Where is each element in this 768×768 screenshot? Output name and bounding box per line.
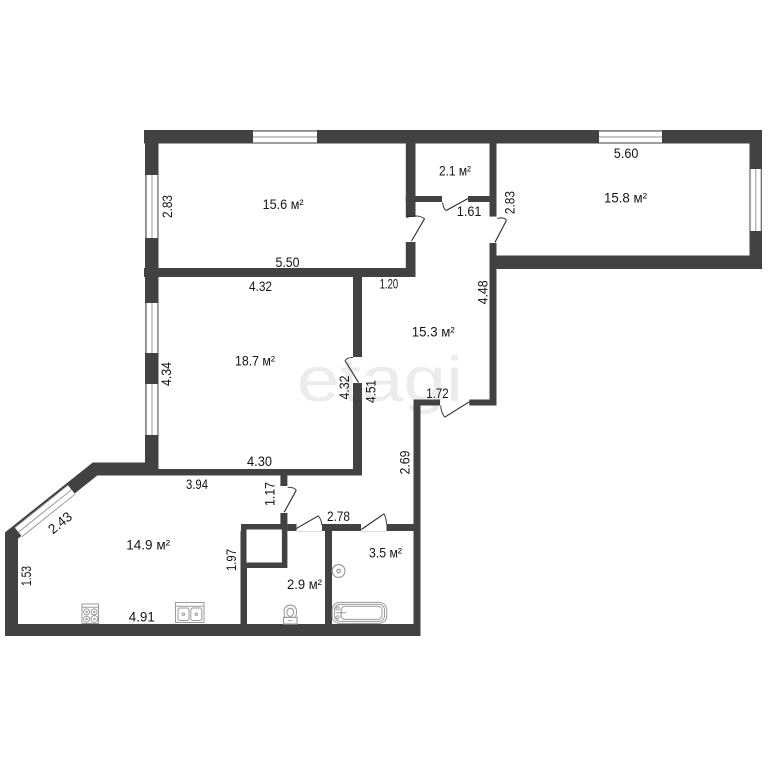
svg-text:3.5 м²: 3.5 м² [369,545,402,561]
svg-text:4.51: 4.51 [364,380,379,403]
svg-text:1.17: 1.17 [262,482,277,506]
svg-text:5.50: 5.50 [276,255,300,270]
svg-text:2.9 м²: 2.9 м² [287,576,322,592]
svg-text:18.7 м²: 18.7 м² [235,352,275,368]
svg-text:4.30: 4.30 [247,454,272,469]
svg-text:4.48: 4.48 [475,280,490,304]
svg-text:2.78: 2.78 [327,509,350,524]
svg-text:1.97: 1.97 [224,549,239,571]
svg-text:1.72: 1.72 [426,386,449,401]
svg-text:14.9 м²: 14.9 м² [126,537,170,553]
svg-text:15.3 м²: 15.3 м² [412,323,455,339]
svg-text:2.83: 2.83 [160,195,175,218]
svg-text:1.61: 1.61 [457,204,482,219]
svg-text:1.53: 1.53 [19,566,34,586]
svg-text:4.32: 4.32 [249,279,272,294]
svg-text:2.83: 2.83 [503,191,518,214]
svg-text:2.1 м²: 2.1 м² [439,162,471,178]
svg-text:4.34: 4.34 [159,362,174,386]
svg-text:15.6 м²: 15.6 м² [263,196,304,212]
svg-text:1.20: 1.20 [380,276,399,291]
svg-text:2.69: 2.69 [397,450,412,474]
svg-text:3.94: 3.94 [186,477,208,492]
svg-text:4.32: 4.32 [337,376,352,400]
svg-text:5.60: 5.60 [614,146,639,161]
svg-text:15.8 м²: 15.8 м² [604,189,647,205]
svg-text:4.91: 4.91 [129,610,155,625]
